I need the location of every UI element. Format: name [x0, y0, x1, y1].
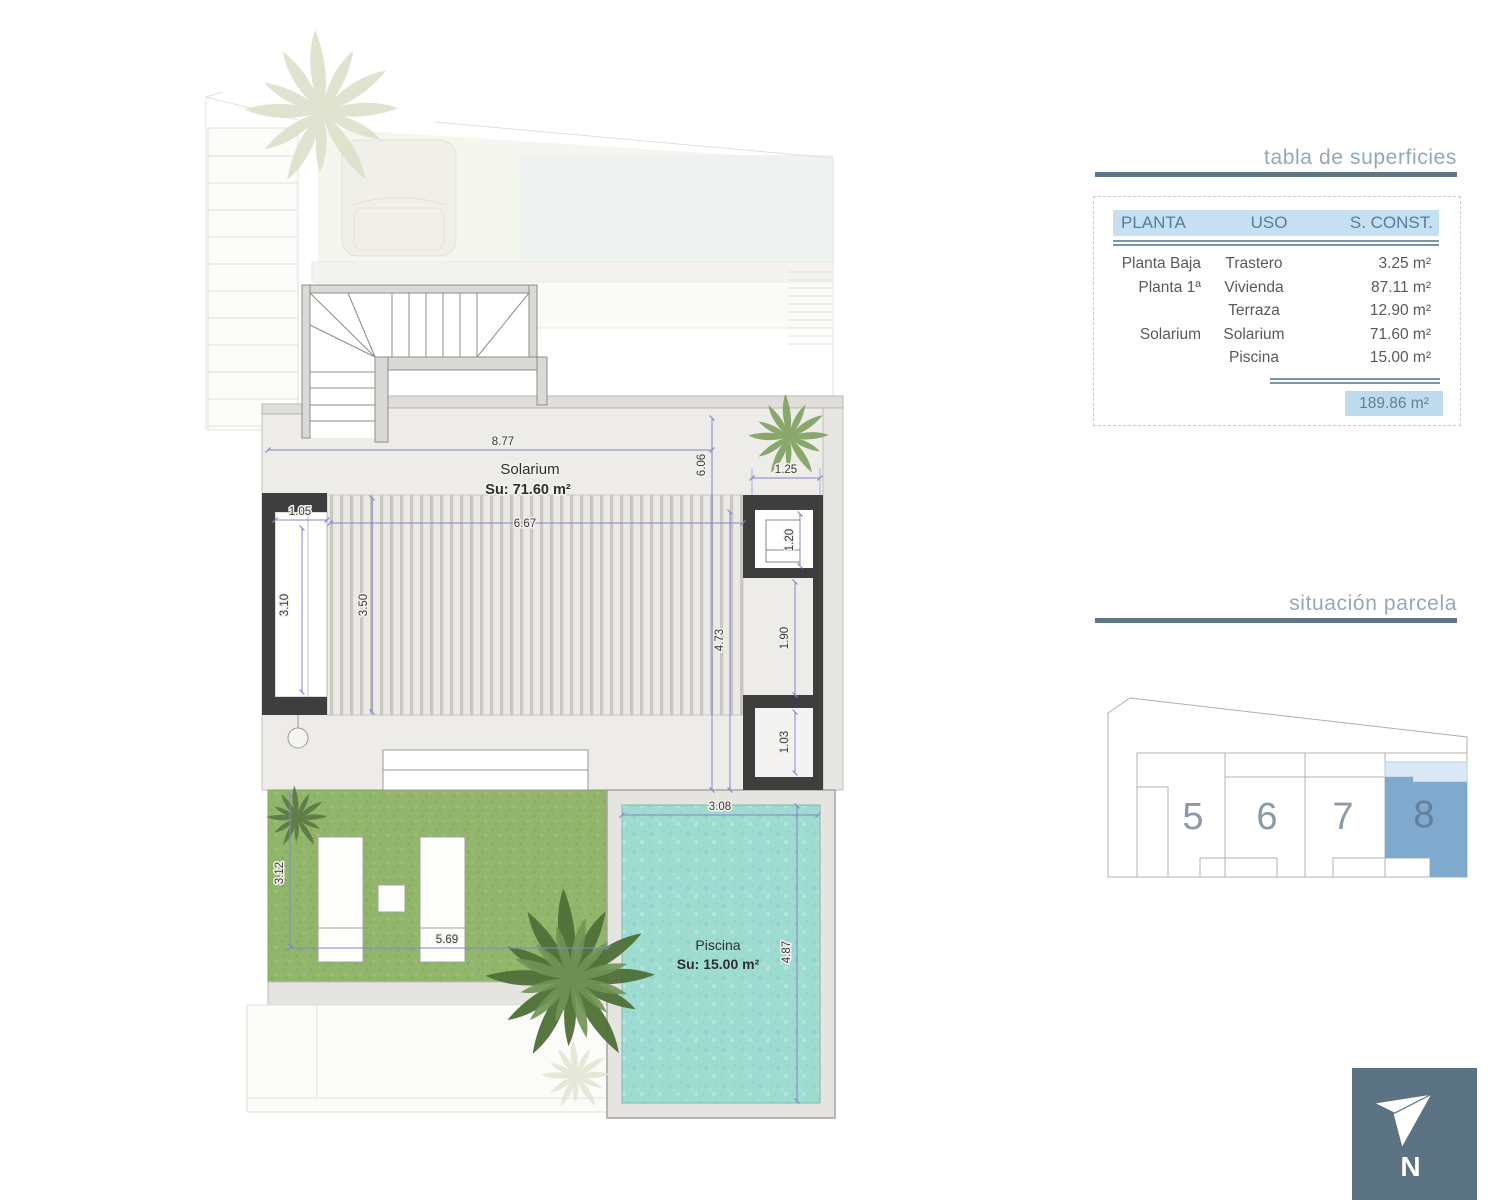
pool — [607, 790, 835, 1118]
dim-solarium-depth: 6.06 — [696, 454, 708, 476]
dim-left-room-height: 3.10 — [279, 594, 291, 616]
table-row: Piscina 15.00 m² — [1113, 346, 1439, 370]
surface-table-header: PLANTA USO S. CONST. — [1113, 210, 1439, 236]
col-header-sconst: S. CONST. — [1321, 213, 1439, 233]
cell-planta: Solarium — [1113, 323, 1201, 347]
architectural-sheet: 8.77 6.06 1.25 6.67 1.05 3.10 3.50 4.73 … — [0, 0, 1500, 1200]
surface-table-body: Planta Baja Trastero 3.25 m² Planta 1ª V… — [1113, 252, 1439, 370]
surface-table-underline — [1095, 172, 1457, 177]
cell-planta — [1113, 299, 1201, 323]
cell-sconst: 71.60 m² — [1307, 323, 1439, 347]
ghost-car — [342, 140, 456, 256]
total-divider — [1270, 378, 1440, 384]
dim-top-width: 8.77 — [492, 436, 514, 448]
cell-uso: Piscina — [1201, 346, 1307, 370]
parcel-section-underline — [1095, 618, 1457, 623]
dim-pool-height: 4.87 — [781, 941, 793, 963]
table-row: Planta Baja Trastero 3.25 m² — [1113, 252, 1439, 276]
plot-5-number: 5 — [1182, 796, 1203, 838]
dim-garden-height: 3.12 — [274, 862, 286, 884]
parcel-section-title: situación parcela — [1095, 592, 1457, 616]
dim-right-bottom: 1.03 — [779, 731, 791, 753]
table-row: Terraza 12.90 m² — [1113, 299, 1439, 323]
surface-table-title: tabla de superficies — [1095, 146, 1457, 170]
dim-right-height: 4.73 — [714, 629, 726, 651]
cell-uso: Vivienda — [1201, 276, 1307, 300]
col-header-planta: PLANTA — [1113, 213, 1217, 233]
dim-pergola-depth: 3.50 — [358, 594, 370, 616]
total-surface-value: 189.86 m² — [1345, 391, 1443, 416]
dim-garden-width: 5.69 — [436, 934, 458, 946]
cell-planta: Planta Baja — [1113, 252, 1201, 276]
parcel-map: 5 6 7 8 — [1108, 698, 1467, 877]
plot-6-number: 6 — [1256, 796, 1277, 838]
cell-sconst: 12.90 m² — [1307, 299, 1439, 323]
outdoor-shower-icon — [288, 728, 308, 748]
solarium-label: Solarium — [500, 461, 559, 478]
dim-right-mid: 1.90 — [779, 627, 791, 649]
plot-8-number: 8 — [1413, 794, 1434, 836]
pool-area-label: Su: 15.00 m² — [677, 956, 760, 972]
cell-planta — [1113, 346, 1201, 370]
cell-uso: Trastero — [1201, 252, 1307, 276]
north-compass: N — [1352, 1068, 1477, 1200]
cell-planta: Planta 1ª — [1113, 276, 1201, 300]
sun-lounger — [318, 837, 363, 962]
table-row: Planta 1ª Vivienda 87.11 m² — [1113, 276, 1439, 300]
solarium-area-label: Su: 71.60 m² — [485, 482, 571, 498]
cell-uso: Terraza — [1201, 299, 1307, 323]
dim-right-top: 1.25 — [775, 464, 797, 476]
table-row: Solarium Solarium 71.60 m² — [1113, 323, 1439, 347]
dim-pergola-width: 6.67 — [514, 518, 536, 530]
cell-sconst: 87.11 m² — [1307, 276, 1439, 300]
walls-left — [262, 493, 327, 715]
pool-label: Piscina — [695, 937, 740, 953]
north-label: N — [1400, 1151, 1421, 1182]
header-divider — [1113, 240, 1439, 246]
dim-pool-width: 3.08 — [709, 801, 731, 813]
side-table — [378, 885, 405, 912]
plot-7-number: 7 — [1332, 796, 1353, 838]
dim-hatch: 1.20 — [784, 529, 796, 551]
cell-sconst: 15.00 m² — [1307, 346, 1439, 370]
cell-sconst: 3.25 m² — [1307, 252, 1439, 276]
col-header-uso: USO — [1217, 213, 1321, 233]
dim-left-room-width: 1.05 — [289, 506, 311, 518]
cell-uso: Solarium — [1201, 323, 1307, 347]
